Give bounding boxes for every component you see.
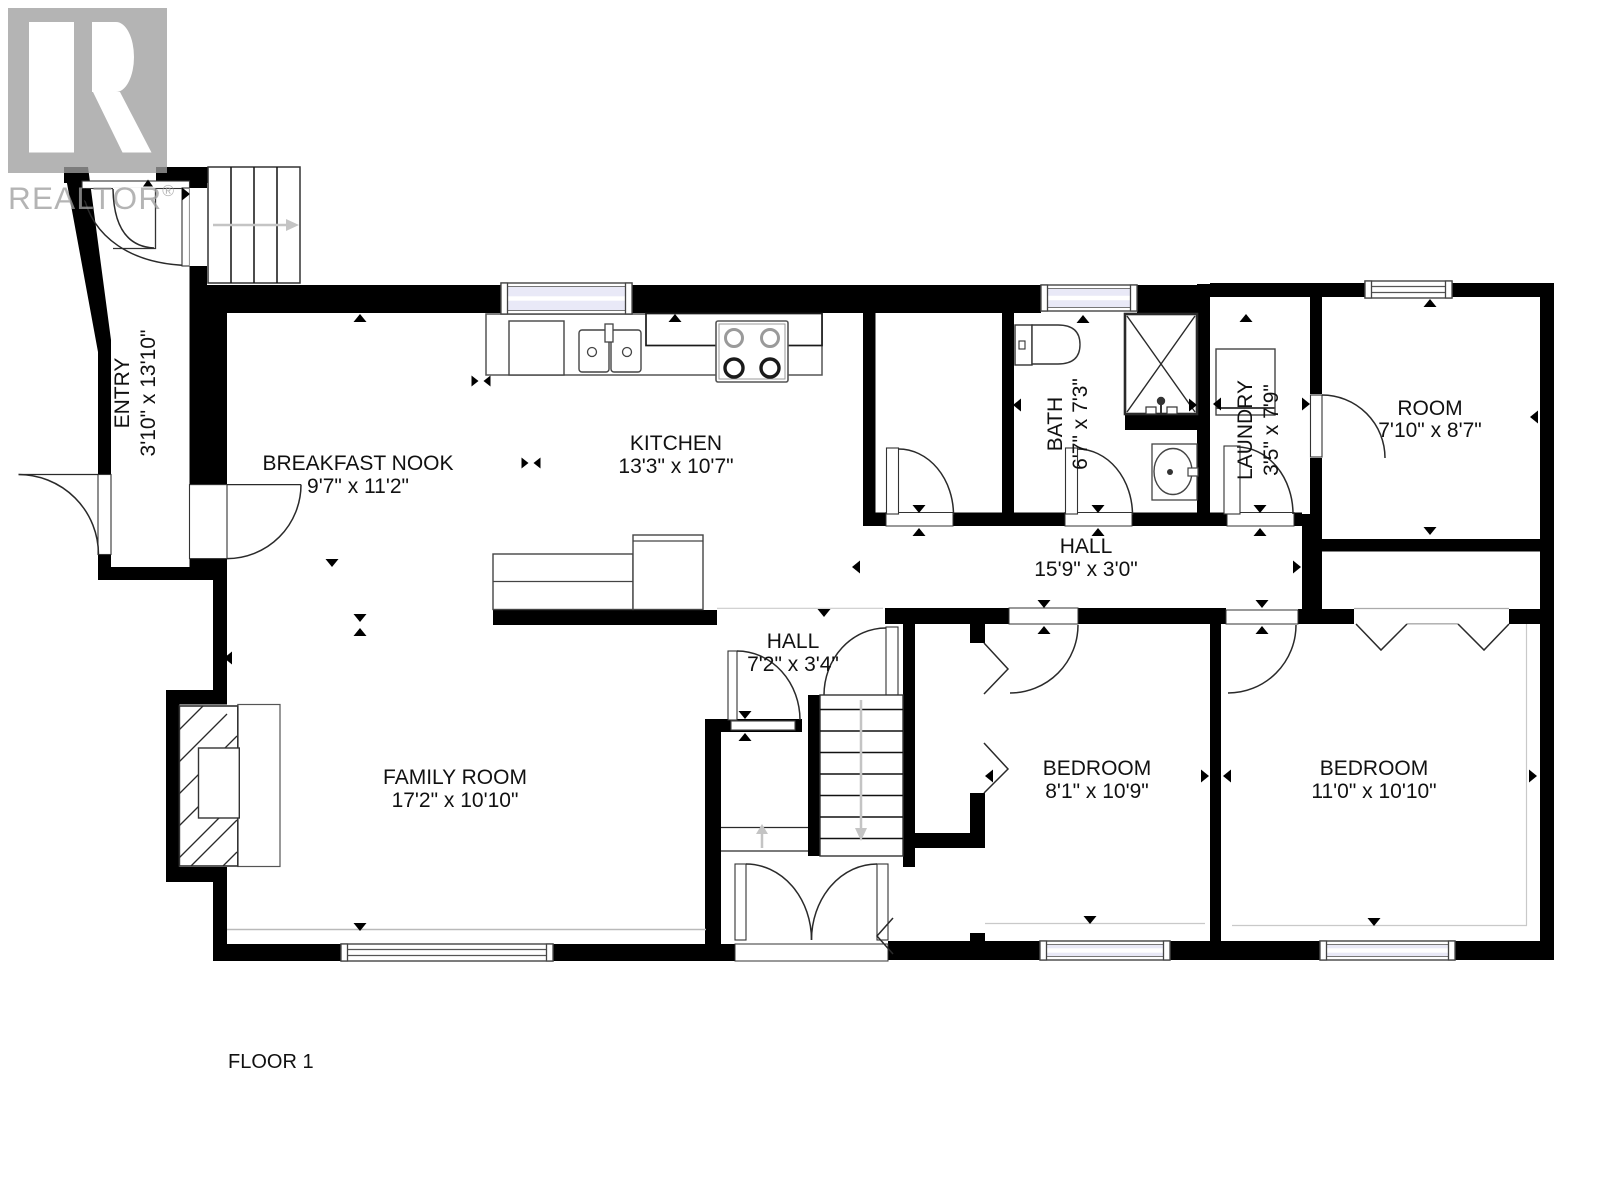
svg-text:LAUNDRY: LAUNDRY [1234, 380, 1257, 480]
svg-text:9'7" x 11'2": 9'7" x 11'2" [307, 475, 409, 498]
svg-text:13'3" x 10'7": 13'3" x 10'7" [618, 455, 733, 478]
svg-text:BATH: BATH [1044, 397, 1067, 451]
svg-text:3'10" x 13'10": 3'10" x 13'10" [137, 330, 160, 457]
svg-text:BREAKFAST NOOK: BREAKFAST NOOK [263, 452, 454, 475]
svg-text:17'2" x 10'10": 17'2" x 10'10" [392, 789, 519, 812]
svg-text:BEDROOM: BEDROOM [1043, 757, 1152, 780]
svg-text:6'7" x 7'3": 6'7" x 7'3" [1069, 378, 1092, 470]
svg-text:15'9" x 3'0": 15'9" x 3'0" [1034, 558, 1138, 581]
svg-text:KITCHEN: KITCHEN [630, 432, 722, 455]
svg-text:BEDROOM: BEDROOM [1320, 757, 1429, 780]
svg-text:7'10" x 8'7": 7'10" x 8'7" [1378, 419, 1482, 442]
svg-text:8'1" x 10'9": 8'1" x 10'9" [1045, 780, 1149, 803]
svg-text:3'5" x 7'9": 3'5" x 7'9" [1260, 384, 1283, 476]
svg-text:11'0" x 10'10": 11'0" x 10'10" [1311, 780, 1436, 803]
svg-text:ENTRY: ENTRY [111, 358, 134, 429]
svg-text:HALL: HALL [1060, 535, 1113, 558]
svg-text:7'2" x 3'4": 7'2" x 3'4" [747, 653, 839, 676]
svg-text:HALL: HALL [767, 630, 820, 653]
svg-text:ROOM: ROOM [1397, 397, 1462, 420]
svg-text:REALTOR®: REALTOR® [8, 180, 175, 216]
svg-text:FLOOR 1: FLOOR 1 [228, 1051, 314, 1073]
svg-text:FAMILY ROOM: FAMILY ROOM [383, 766, 527, 789]
